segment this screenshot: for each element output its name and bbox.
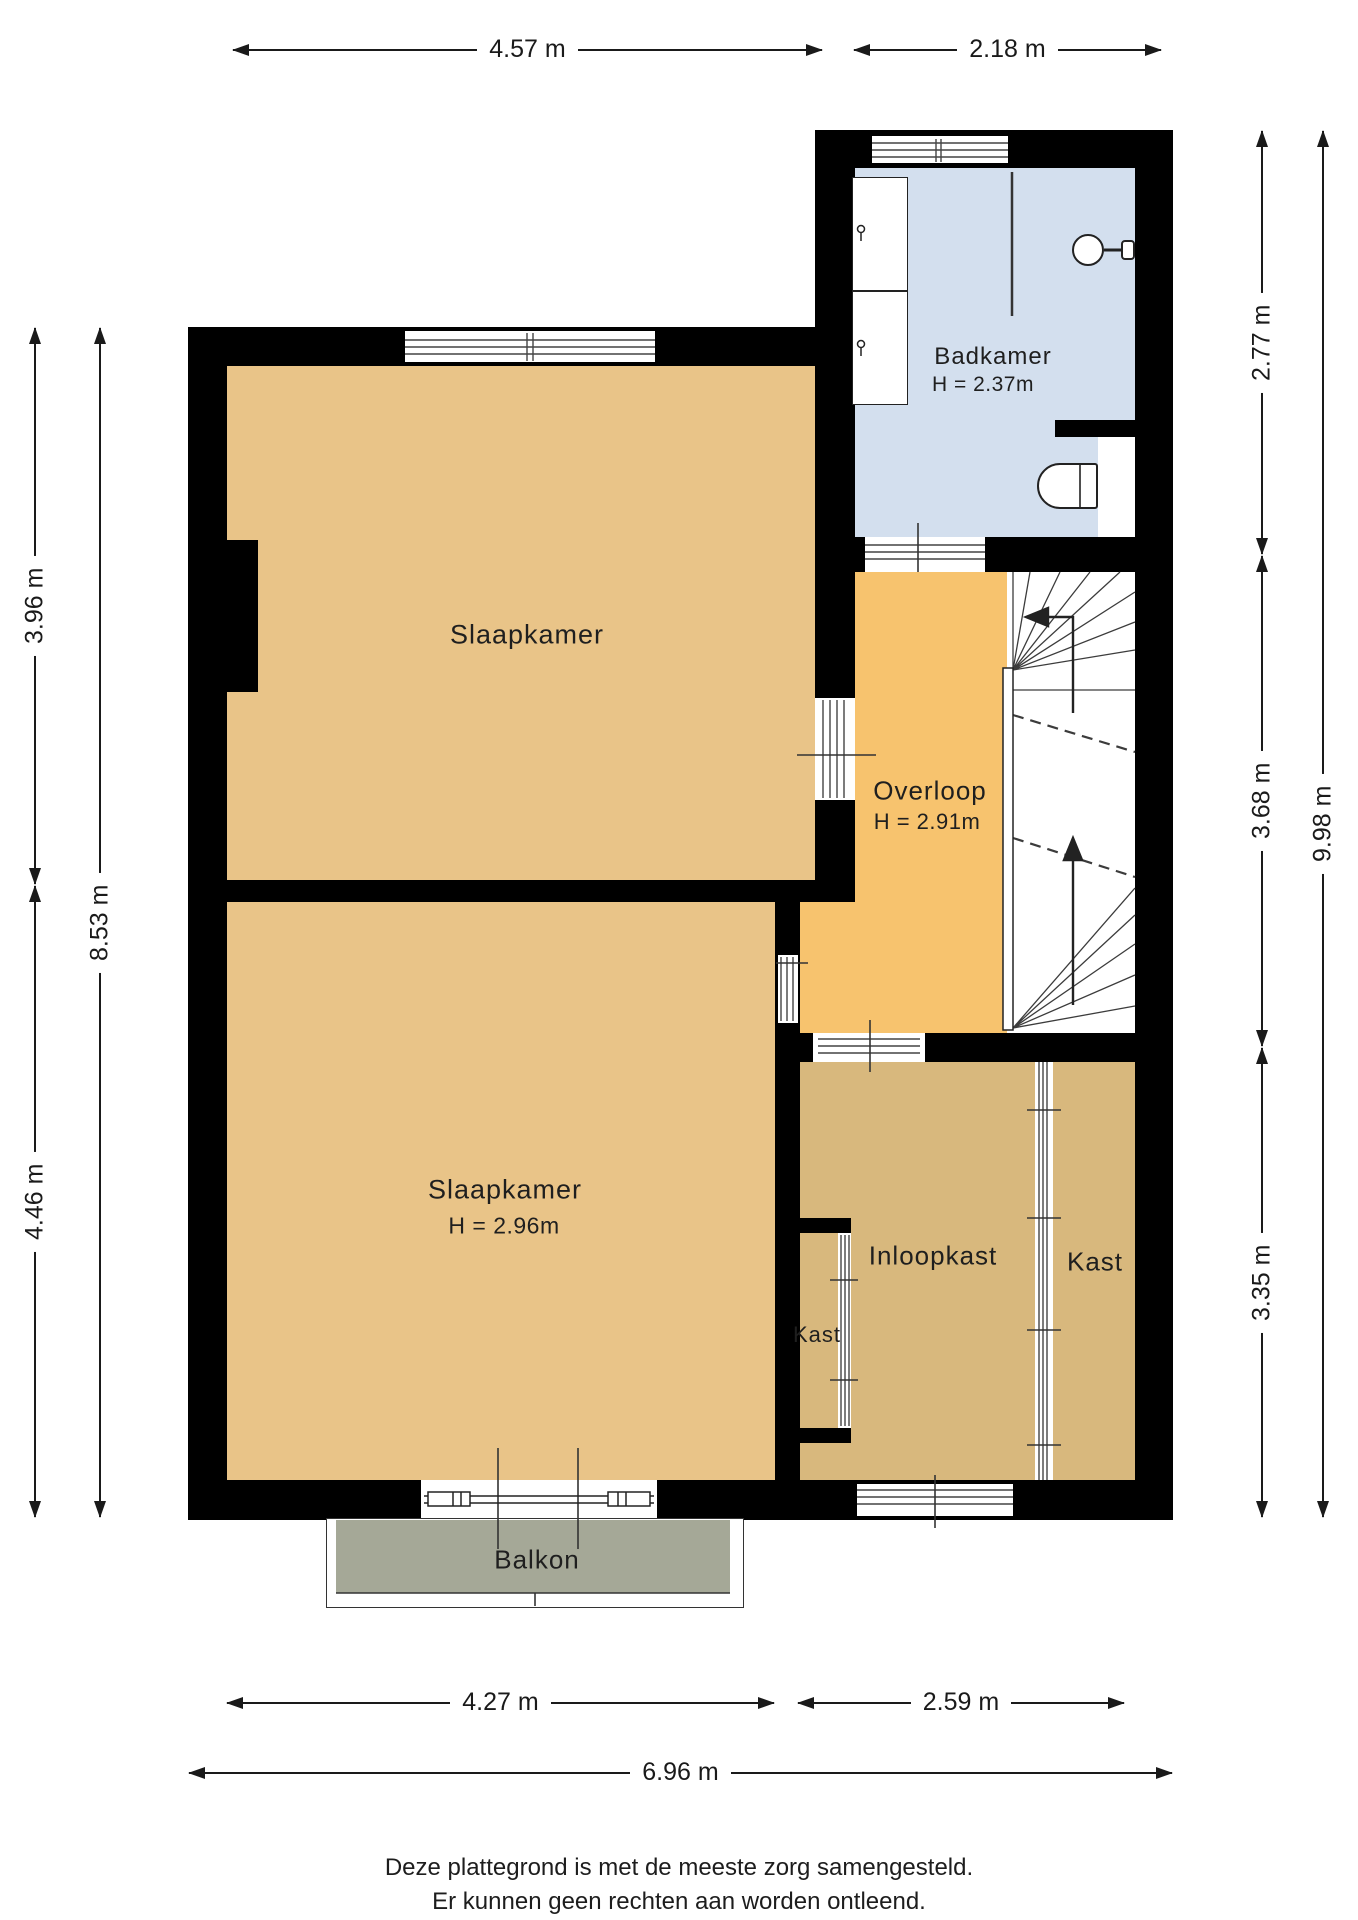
door-ticks	[498, 523, 1061, 1606]
dim-right-total: 9.98 m	[1316, 130, 1330, 1518]
dim-bottom-left: 4.27 m	[226, 1696, 775, 1710]
dim-right-upper: 2.77 m	[1255, 130, 1269, 555]
room-height-landing: H = 2.91m	[874, 809, 981, 835]
dim-left-total-value: 8.53 m	[86, 872, 114, 972]
room-label-closet-right: Kast	[1067, 1247, 1123, 1278]
balcony-door-rail	[424, 1492, 654, 1506]
dim-bottom-right-value: 2.59 m	[911, 1689, 1011, 1717]
dim-right-middle: 3.68 m	[1255, 555, 1269, 1047]
room-label-bedroom-1: Slaapkamer	[450, 620, 604, 651]
dim-top-right: 2.18 m	[853, 43, 1162, 57]
dim-right-upper-value: 2.77 m	[1248, 292, 1276, 392]
sink-tap	[1122, 241, 1134, 259]
staircase-banister	[1003, 668, 1013, 1030]
disclaimer-line-1: Deze plattegrond is met de meeste zorg s…	[0, 1854, 1358, 1882]
dim-bottom-total-value: 6.96 m	[630, 1759, 730, 1787]
dim-right-middle-value: 3.68 m	[1248, 751, 1276, 851]
room-label-closet-small: Kast	[793, 1322, 841, 1348]
dim-left-lower: 4.46 m	[28, 885, 42, 1518]
room-height-bathroom: H = 2.37m	[932, 373, 1034, 397]
dim-bottom-left-value: 4.27 m	[450, 1689, 550, 1717]
plan-linework	[0, 0, 1358, 1920]
room-height-bedroom-2: H = 2.96m	[448, 1213, 559, 1240]
dim-top-right-value: 2.18 m	[957, 36, 1057, 64]
room-label-balcony: Balkon	[494, 1545, 580, 1576]
dim-left-total: 8.53 m	[93, 327, 107, 1518]
dim-right-lower: 3.35 m	[1255, 1047, 1269, 1518]
disclaimer-line-2: Er kunnen geen rechten aan worden ontlee…	[0, 1888, 1358, 1916]
dim-left-upper: 3.96 m	[28, 327, 42, 885]
dim-right-lower-value: 3.35 m	[1248, 1232, 1276, 1332]
dim-left-lower-value: 4.46 m	[21, 1151, 49, 1251]
room-label-walk-in-closet: Inloopkast	[869, 1241, 998, 1272]
dim-bottom-total: 6.96 m	[188, 1766, 1173, 1780]
cabinet-handles	[858, 226, 865, 357]
staircase-arrows	[1026, 608, 1082, 1005]
dim-left-upper-value: 3.96 m	[21, 556, 49, 656]
dim-top-left-value: 4.57 m	[477, 36, 577, 64]
room-label-bathroom: Badkamer	[934, 343, 1051, 371]
room-label-landing: Overloop	[873, 776, 987, 807]
dim-right-total-value: 9.98 m	[1309, 774, 1337, 874]
room-label-bedroom-2: Slaapkamer	[428, 1175, 582, 1206]
dim-bottom-right: 2.59 m	[797, 1696, 1125, 1710]
dim-top-left: 4.57 m	[232, 43, 823, 57]
floorplan-canvas: Slaapkamer Slaapkamer H = 2.96m Badkamer…	[0, 0, 1358, 1920]
